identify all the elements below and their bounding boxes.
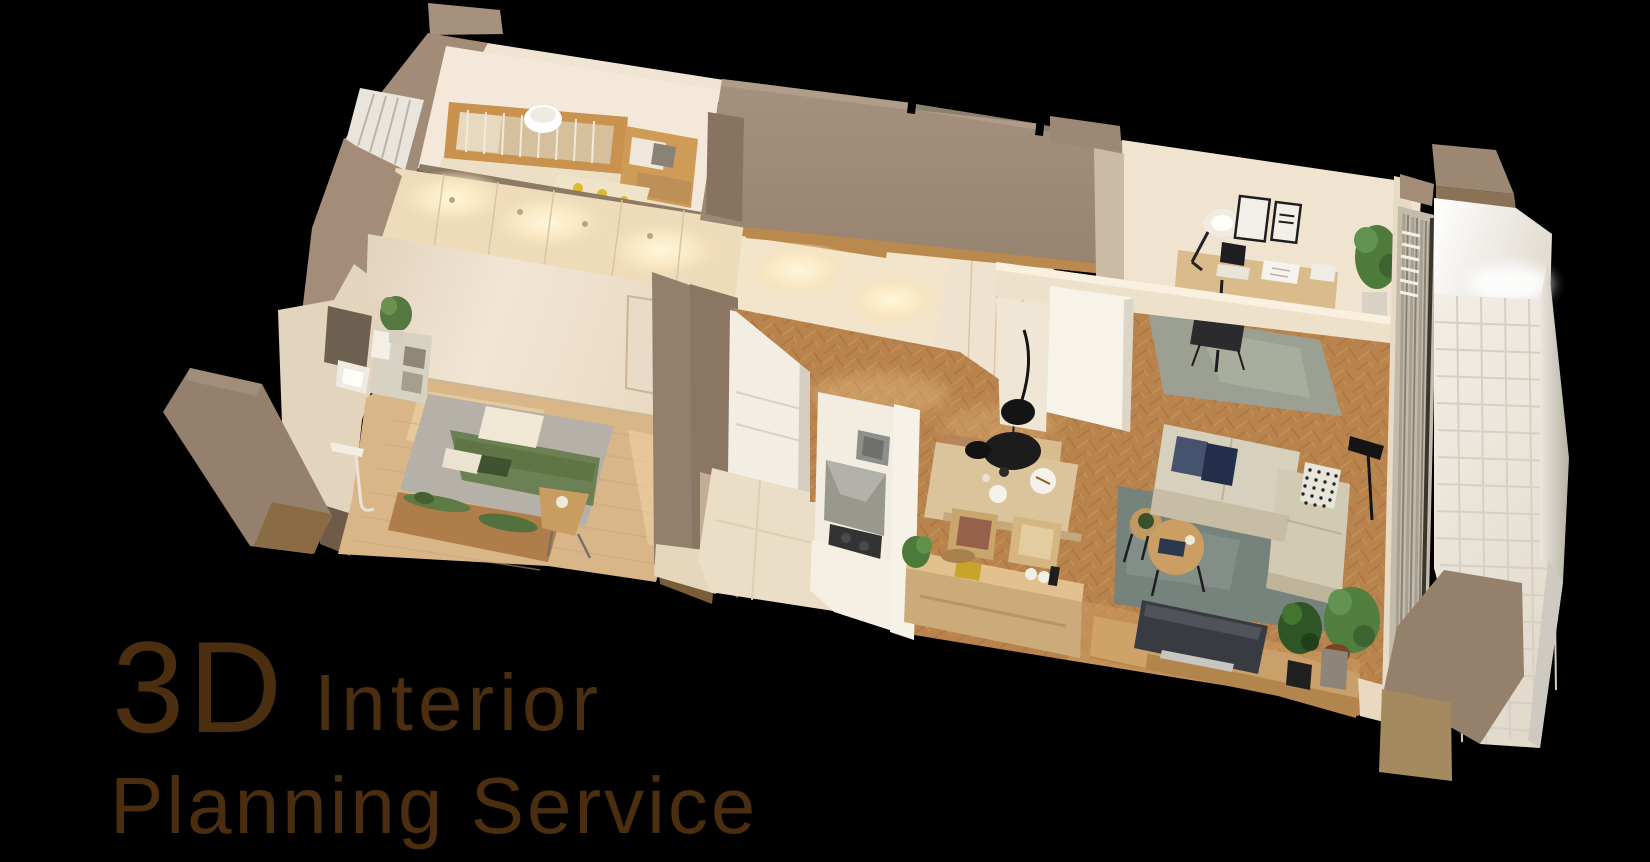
svg-text:Planning Service: Planning Service: [110, 761, 758, 850]
svg-text:Interior: Interior: [314, 658, 603, 747]
svg-text:3D: 3D: [112, 614, 286, 760]
